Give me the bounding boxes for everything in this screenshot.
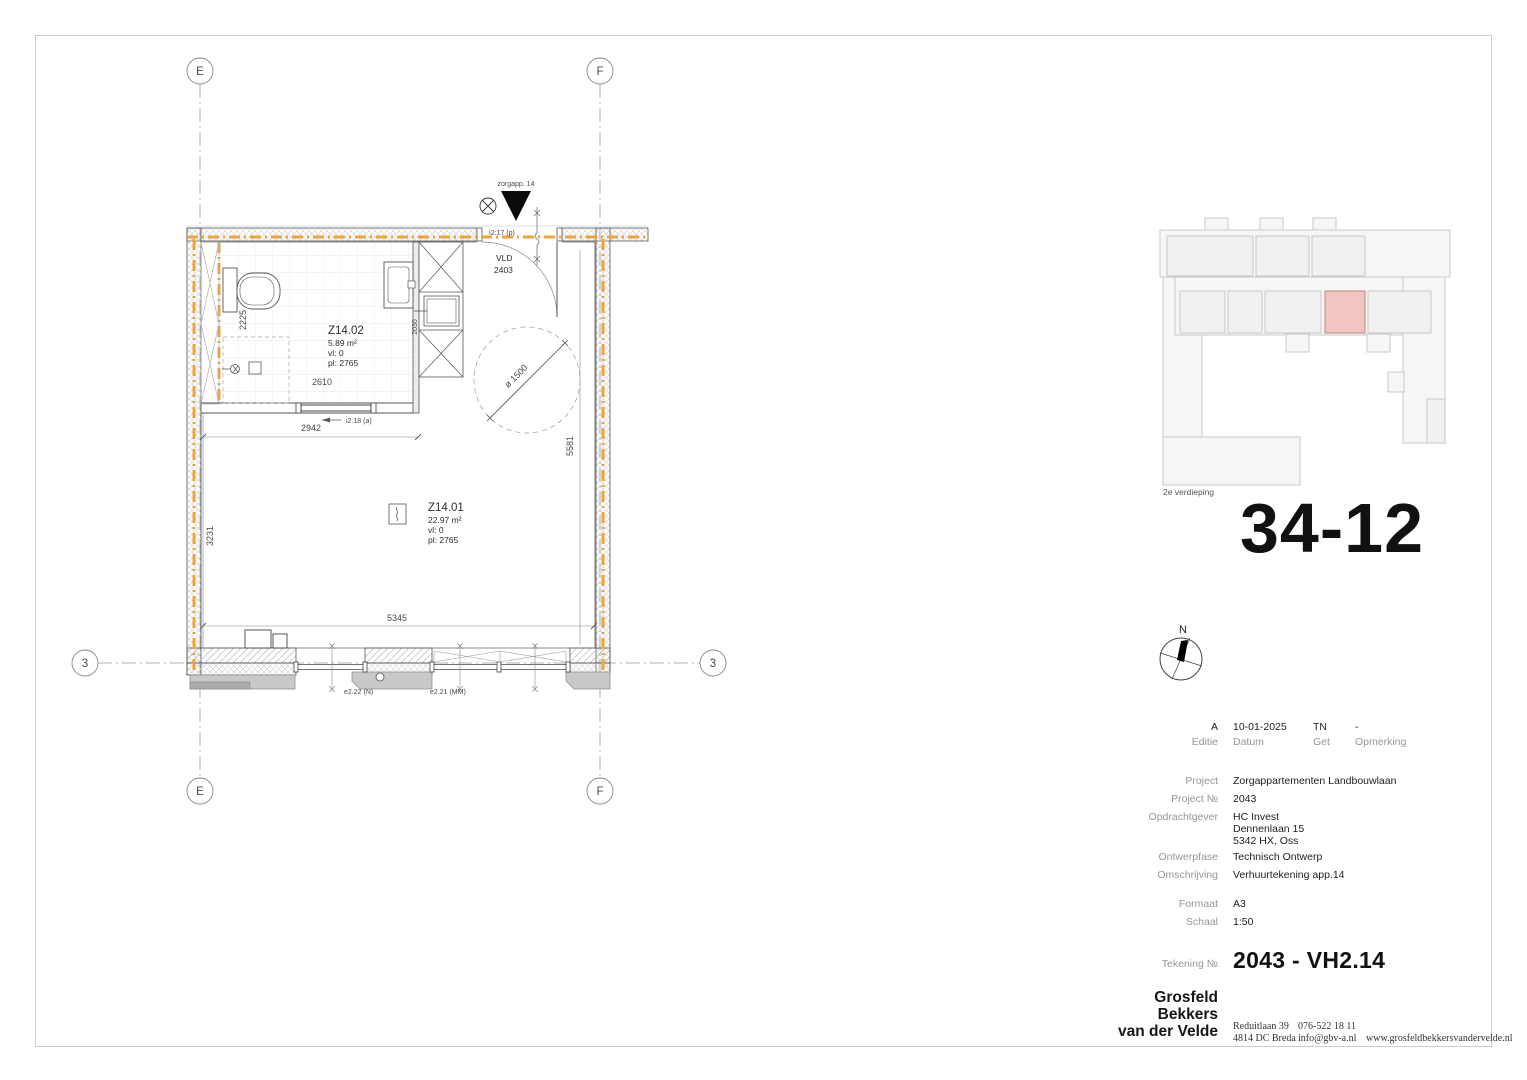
format-label: Formaat bbox=[1148, 898, 1218, 910]
living-id: Z14.01 bbox=[428, 502, 464, 514]
bathroom-vl: vl: 0 bbox=[328, 348, 344, 358]
washbasin bbox=[384, 262, 415, 308]
projectno-label: Project № bbox=[1148, 793, 1218, 805]
bathroom-id: Z14.02 bbox=[328, 325, 364, 337]
revision-datum-value: 10-01-2025 bbox=[1233, 721, 1313, 733]
shaft-left bbox=[201, 242, 219, 404]
grid-bubbles: E F E F 3 3 bbox=[72, 58, 726, 804]
window-right-code: e2.21 (MM) bbox=[430, 689, 466, 696]
interior-door-code: i2.18 (a) bbox=[346, 418, 372, 425]
drawingno-label: Tekening № bbox=[1148, 958, 1218, 970]
light-fixture-icon bbox=[480, 198, 496, 214]
column-marker bbox=[376, 673, 384, 681]
grid-label-e-top: E bbox=[196, 66, 204, 78]
vld-label: VLD bbox=[496, 253, 513, 263]
client-line2: Dennenlaan 15 bbox=[1233, 823, 1304, 835]
revision-editie-value: A bbox=[1148, 721, 1218, 733]
key-plan-highlighted-unit bbox=[1325, 291, 1365, 333]
firm-address-line1: Reduitlaan 39 bbox=[1233, 1021, 1296, 1033]
cabinet-column bbox=[414, 242, 463, 377]
firm-address-line2: 4814 DC Breda bbox=[1233, 1033, 1296, 1045]
client-line3: 5342 HX, Oss bbox=[1233, 835, 1298, 847]
wall-bottom bbox=[187, 648, 610, 675]
firm-name-line3: van der Velde bbox=[1040, 1023, 1218, 1040]
revision-opmerking-value: - bbox=[1355, 721, 1359, 733]
client-line1: HC Invest bbox=[1233, 811, 1279, 823]
phase-label: Ontwerpfase bbox=[1148, 851, 1218, 863]
window-left-code: e2.22 (N) bbox=[344, 689, 373, 696]
living-area: 22.97 m² bbox=[428, 515, 462, 525]
grid-label-3-left: 3 bbox=[82, 658, 88, 670]
scale-value: 1:50 bbox=[1233, 916, 1253, 928]
window-right bbox=[430, 651, 570, 672]
sliding-door-leaf bbox=[301, 405, 371, 411]
format-value: A3 bbox=[1233, 898, 1246, 910]
shower-drain bbox=[249, 362, 261, 374]
furniture-block bbox=[245, 630, 287, 648]
firm-name-line2: Bekkers bbox=[1040, 1006, 1218, 1023]
dim-turning-circle: ø 1500 bbox=[503, 363, 530, 390]
revision-editie-label: Editie bbox=[1148, 736, 1218, 748]
phase-value: Technisch Ontwerp bbox=[1233, 851, 1322, 863]
wall-top-left bbox=[187, 228, 477, 241]
toilet bbox=[223, 268, 280, 312]
entrance-apartment-label: zorgapp. 14 bbox=[498, 181, 535, 188]
bathroom-pl: pl: 2765 bbox=[328, 358, 359, 368]
bathroom-area: 5.89 m² bbox=[328, 338, 357, 348]
drawingno-value: 2043 - VH2.14 bbox=[1233, 947, 1385, 974]
grid-label-f-bottom: F bbox=[596, 786, 603, 798]
unit-number: 34-12 bbox=[1160, 492, 1504, 564]
project-value: Zorgappartementen Landbouwlaan bbox=[1233, 775, 1396, 787]
firm-email: info@gbv-a.nl bbox=[1298, 1033, 1356, 1045]
revision-opmerking-label: Opmerking bbox=[1355, 736, 1406, 748]
grid-label-f-top: F bbox=[596, 66, 603, 78]
description-value: Verhuurtekening app.14 bbox=[1233, 869, 1345, 881]
firm-website: www.grosfeldbekkersvandervelde.nl bbox=[1366, 1033, 1513, 1045]
dim-shaft: 2030 bbox=[412, 319, 419, 335]
panel-symbol bbox=[389, 504, 406, 524]
scale-label: Schaal bbox=[1148, 916, 1218, 928]
north-label: N bbox=[1179, 624, 1187, 636]
revision-labels: DatumGetOpmerking bbox=[1233, 736, 1406, 748]
firm-logo: Grosfeld Bekkers van der Velde bbox=[1040, 989, 1218, 1040]
entrance-door-code: i2:17 (p) bbox=[489, 230, 515, 237]
firm-name-line1: Grosfeld bbox=[1040, 989, 1218, 1006]
dim-room-height: 5581 bbox=[565, 436, 575, 456]
entrance-door bbox=[482, 242, 557, 317]
dim-room-width: 5345 bbox=[387, 613, 407, 623]
projectno-value: 2043 bbox=[1233, 793, 1256, 805]
vld-number: 2403 bbox=[494, 265, 513, 275]
living-vl: vl: 0 bbox=[428, 525, 444, 535]
entrance-triangle-icon bbox=[501, 191, 531, 221]
revision-get-label: Get bbox=[1313, 736, 1355, 748]
wall-bathroom-bottom bbox=[201, 403, 413, 413]
revision-datum-label: Datum bbox=[1233, 736, 1313, 748]
description-label: Omschrijving bbox=[1148, 869, 1218, 881]
dim-hall-width: 2942 bbox=[301, 423, 321, 433]
grid-label-e-bottom: E bbox=[196, 786, 204, 798]
project-label: Project bbox=[1148, 775, 1218, 787]
north-arrow-icon: N bbox=[1160, 624, 1202, 680]
firm-address: Reduitlaan 39 4814 DC Breda bbox=[1233, 1021, 1296, 1045]
firm-contact: 076-522 18 11 info@gbv-a.nl bbox=[1298, 1021, 1356, 1045]
revision-values: 10-01-2025TN- bbox=[1233, 721, 1359, 733]
dim-bath-width: 2610 bbox=[312, 377, 332, 387]
interior-door-arrow bbox=[322, 418, 341, 423]
grid-label-3-right: 3 bbox=[710, 658, 716, 670]
key-plan bbox=[1160, 218, 1450, 485]
dim-bath-height: 2225 bbox=[238, 310, 248, 330]
client-label: Opdrachtgever bbox=[1148, 811, 1218, 823]
revision-get-value: TN bbox=[1313, 721, 1355, 733]
drawing-sheet: E F E F 3 3 zorgapp. 14 i2:17 (p) VLD 24… bbox=[0, 0, 1527, 1080]
turning-circle bbox=[474, 327, 580, 433]
firm-phone: 076-522 18 11 bbox=[1298, 1021, 1356, 1033]
window-left bbox=[294, 662, 367, 672]
dim-living-height: 3231 bbox=[205, 526, 215, 546]
living-pl: pl: 2765 bbox=[428, 535, 459, 545]
